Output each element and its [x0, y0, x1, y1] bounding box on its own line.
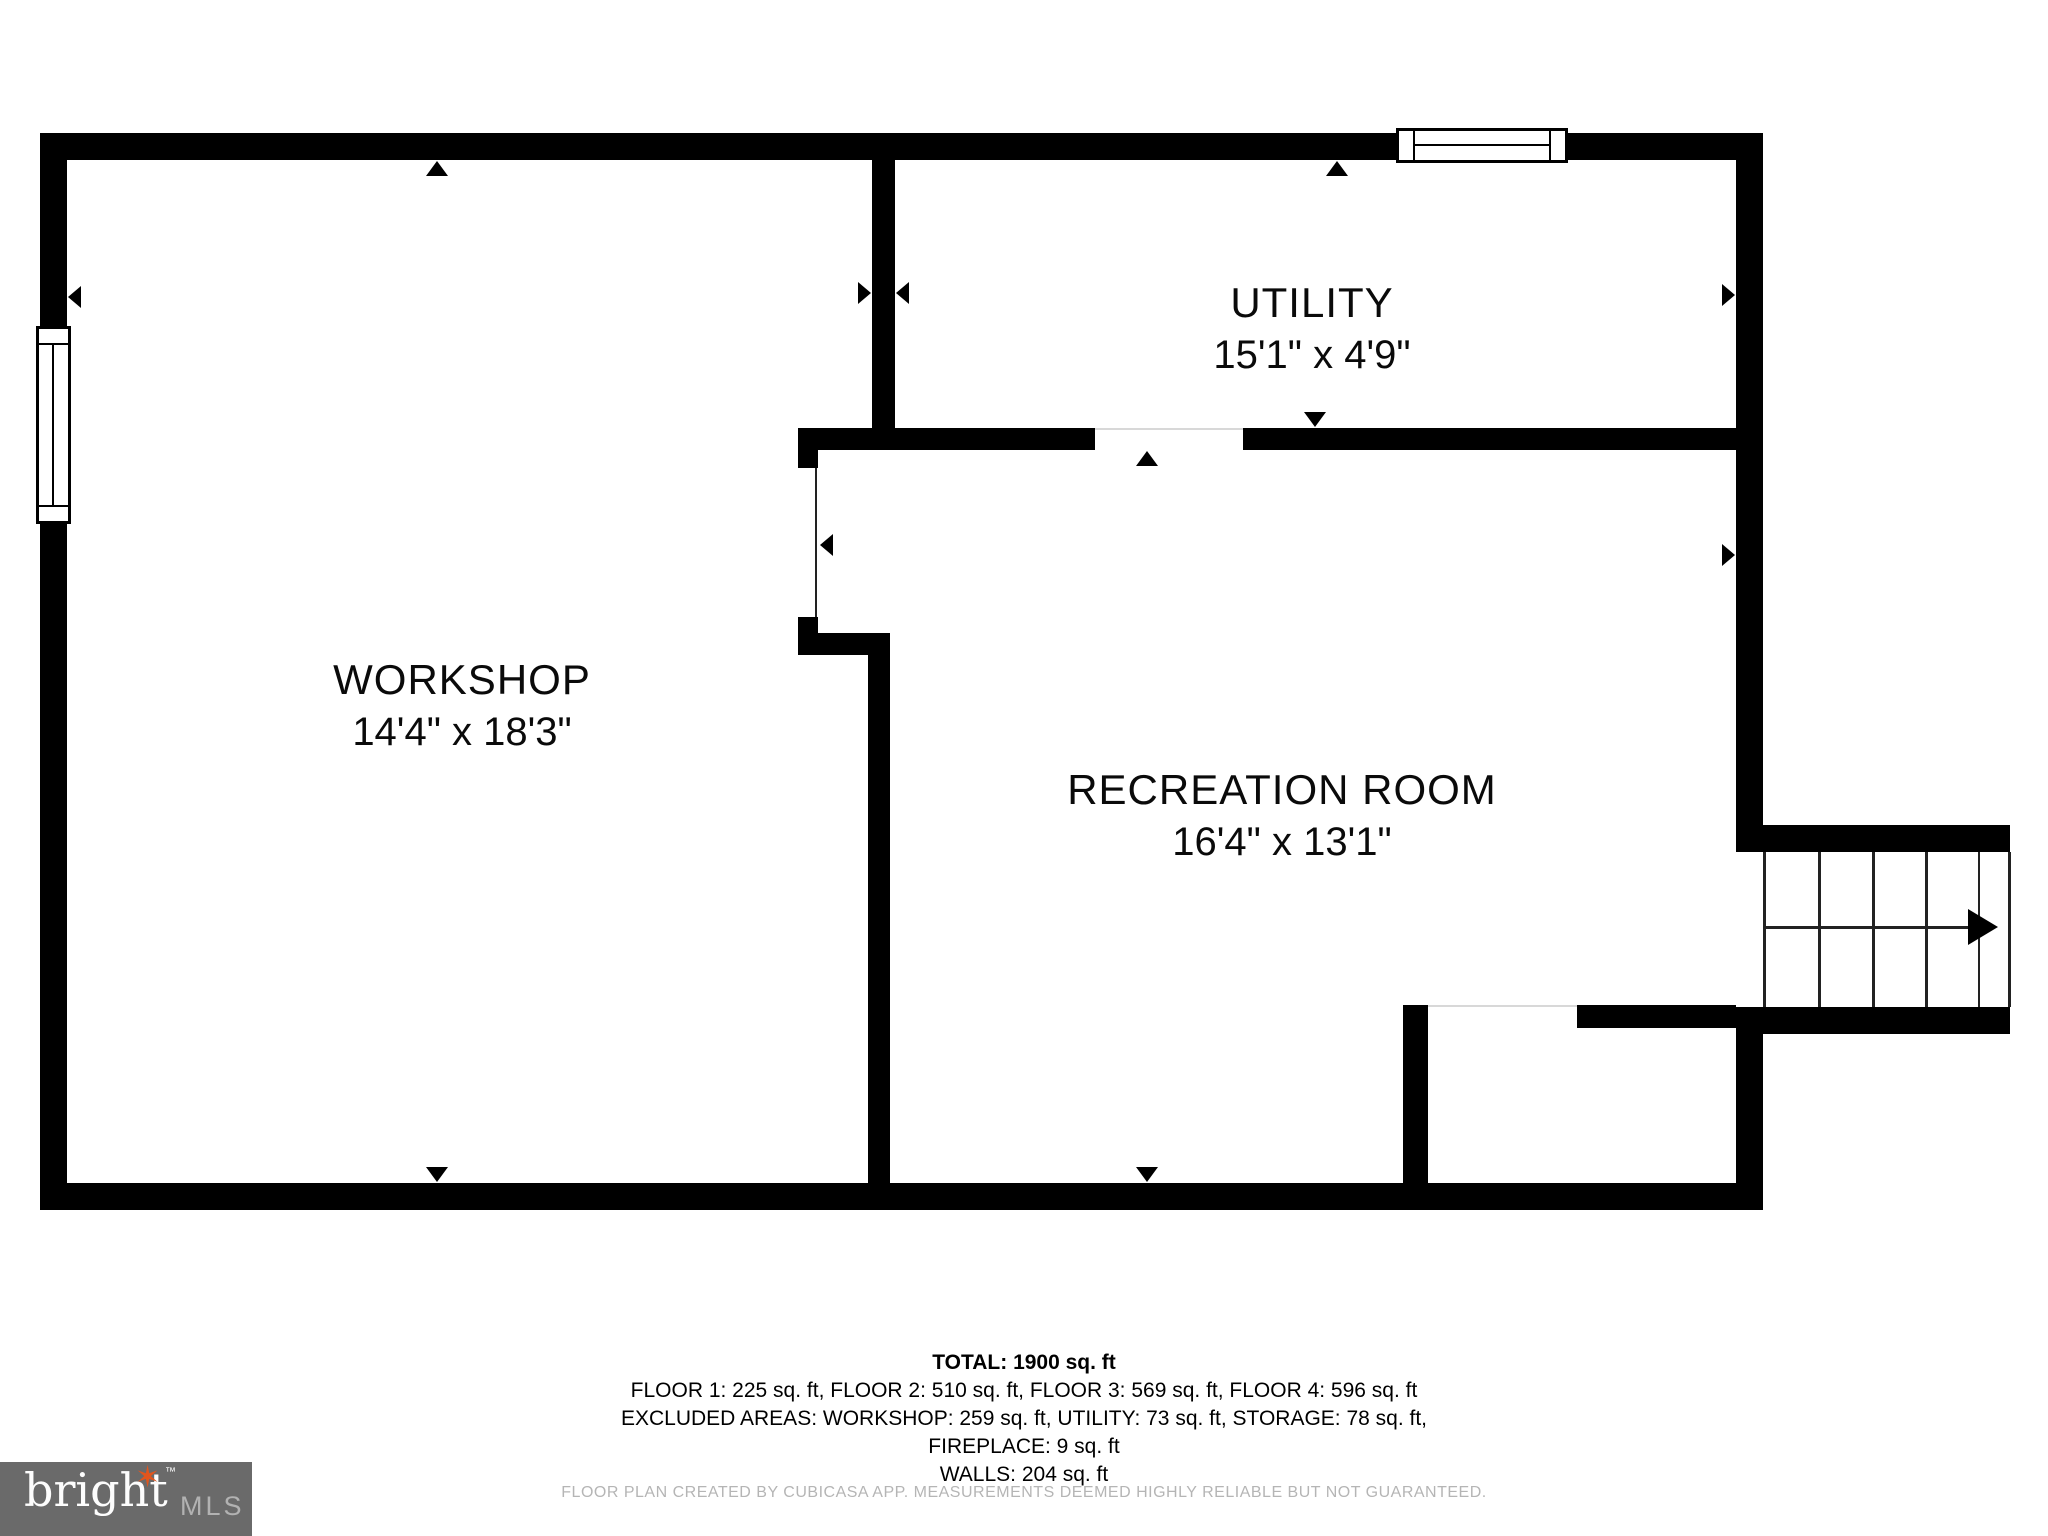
- door-marker-icon: [1326, 161, 1348, 176]
- door-marker-icon: [1136, 1167, 1158, 1182]
- utility-bottom-wall-right: [1243, 428, 1763, 450]
- stair-direction-arrow-icon: [1968, 909, 1998, 945]
- room-label-recreation: RECREATION ROOM 16'4" x 13'1": [1067, 764, 1497, 868]
- floor-areas: FLOOR 1: 225 sq. ft, FLOOR 2: 510 sq. ft…: [0, 1377, 2048, 1405]
- window-icon: [1396, 128, 1568, 163]
- door-marker-icon: [820, 534, 833, 556]
- room-dimensions: 16'4" x 13'1": [1067, 816, 1497, 868]
- door-marker-icon: [1722, 544, 1735, 566]
- stair-direction-line: [1765, 926, 1970, 929]
- stair-tread-line: [1872, 852, 1875, 1007]
- total-area: TOTAL: 1900 sq. ft: [0, 1349, 2048, 1377]
- right-wall-upper: [1736, 133, 1763, 852]
- door-marker-icon: [1722, 284, 1735, 306]
- workshop-door-opening-line: [815, 468, 817, 617]
- workshop-doorway-stub-lower: [798, 617, 818, 655]
- room-label-workshop: WORKSHOP 14'4" x 18'3": [333, 654, 591, 758]
- disclaimer-text: FLOOR PLAN CREATED BY CUBICASA APP. MEAS…: [0, 1484, 2048, 1502]
- room-dimensions: 15'1" x 4'9": [1213, 329, 1410, 381]
- fireplace-area: FIREPLACE: 9 sq. ft: [0, 1433, 2048, 1461]
- storage-top-wall: [1577, 1005, 1736, 1028]
- room-label-utility: UTILITY 15'1" x 4'9": [1213, 277, 1410, 381]
- window-icon: [36, 326, 71, 524]
- door-marker-icon: [68, 286, 81, 308]
- door-marker-icon: [1304, 412, 1326, 427]
- stair-bottom-wall: [1736, 1007, 2010, 1034]
- utility-bottom-wall-left: [798, 428, 1095, 450]
- stair-left-edge: [1763, 852, 1766, 1007]
- room-name: RECREATION ROOM: [1067, 764, 1497, 816]
- bottom-wall: [40, 1183, 1763, 1210]
- room-dimensions: 14'4" x 18'3": [333, 706, 591, 758]
- stair-tread-line: [1925, 852, 1928, 1007]
- workshop-utility-divider-wall: [872, 160, 895, 428]
- star-icon: ✶: [135, 1460, 160, 1495]
- room-name: UTILITY: [1213, 277, 1410, 329]
- door-marker-icon: [1136, 451, 1158, 466]
- door-marker-icon: [426, 1167, 448, 1182]
- door-marker-icon: [858, 282, 871, 304]
- right-wall-lower: [1736, 1034, 1763, 1210]
- room-name: WORKSHOP: [333, 654, 591, 706]
- left-wall: [40, 133, 67, 1210]
- logo-mls-text: MLS: [180, 1491, 245, 1522]
- workshop-east-wall-jog: [818, 633, 890, 655]
- stair-right-edge: [2008, 852, 2011, 1007]
- stair-tread-line: [1818, 852, 1821, 1007]
- utility-door-opening-line: [1095, 428, 1243, 430]
- storage-opening-line: [1428, 1005, 1577, 1007]
- trademark-symbol: ™: [165, 1466, 176, 1478]
- workshop-doorway-stub-upper: [798, 450, 818, 468]
- bright-mls-logo: bright ✶ ™ MLS: [0, 1462, 252, 1536]
- floor-plan: WORKSHOP 14'4" x 18'3" UTILITY 15'1" x 4…: [0, 0, 2048, 1536]
- door-marker-icon: [896, 282, 909, 304]
- door-marker-icon: [426, 161, 448, 176]
- area-summary: TOTAL: 1900 sq. ft FLOOR 1: 225 sq. ft, …: [0, 1349, 2048, 1489]
- excluded-areas: EXCLUDED AREAS: WORKSHOP: 259 sq. ft, UT…: [0, 1405, 2048, 1433]
- storage-left-wall: [1403, 1005, 1428, 1183]
- stair-top-wall: [1736, 825, 2010, 852]
- workshop-east-wall: [868, 655, 890, 1183]
